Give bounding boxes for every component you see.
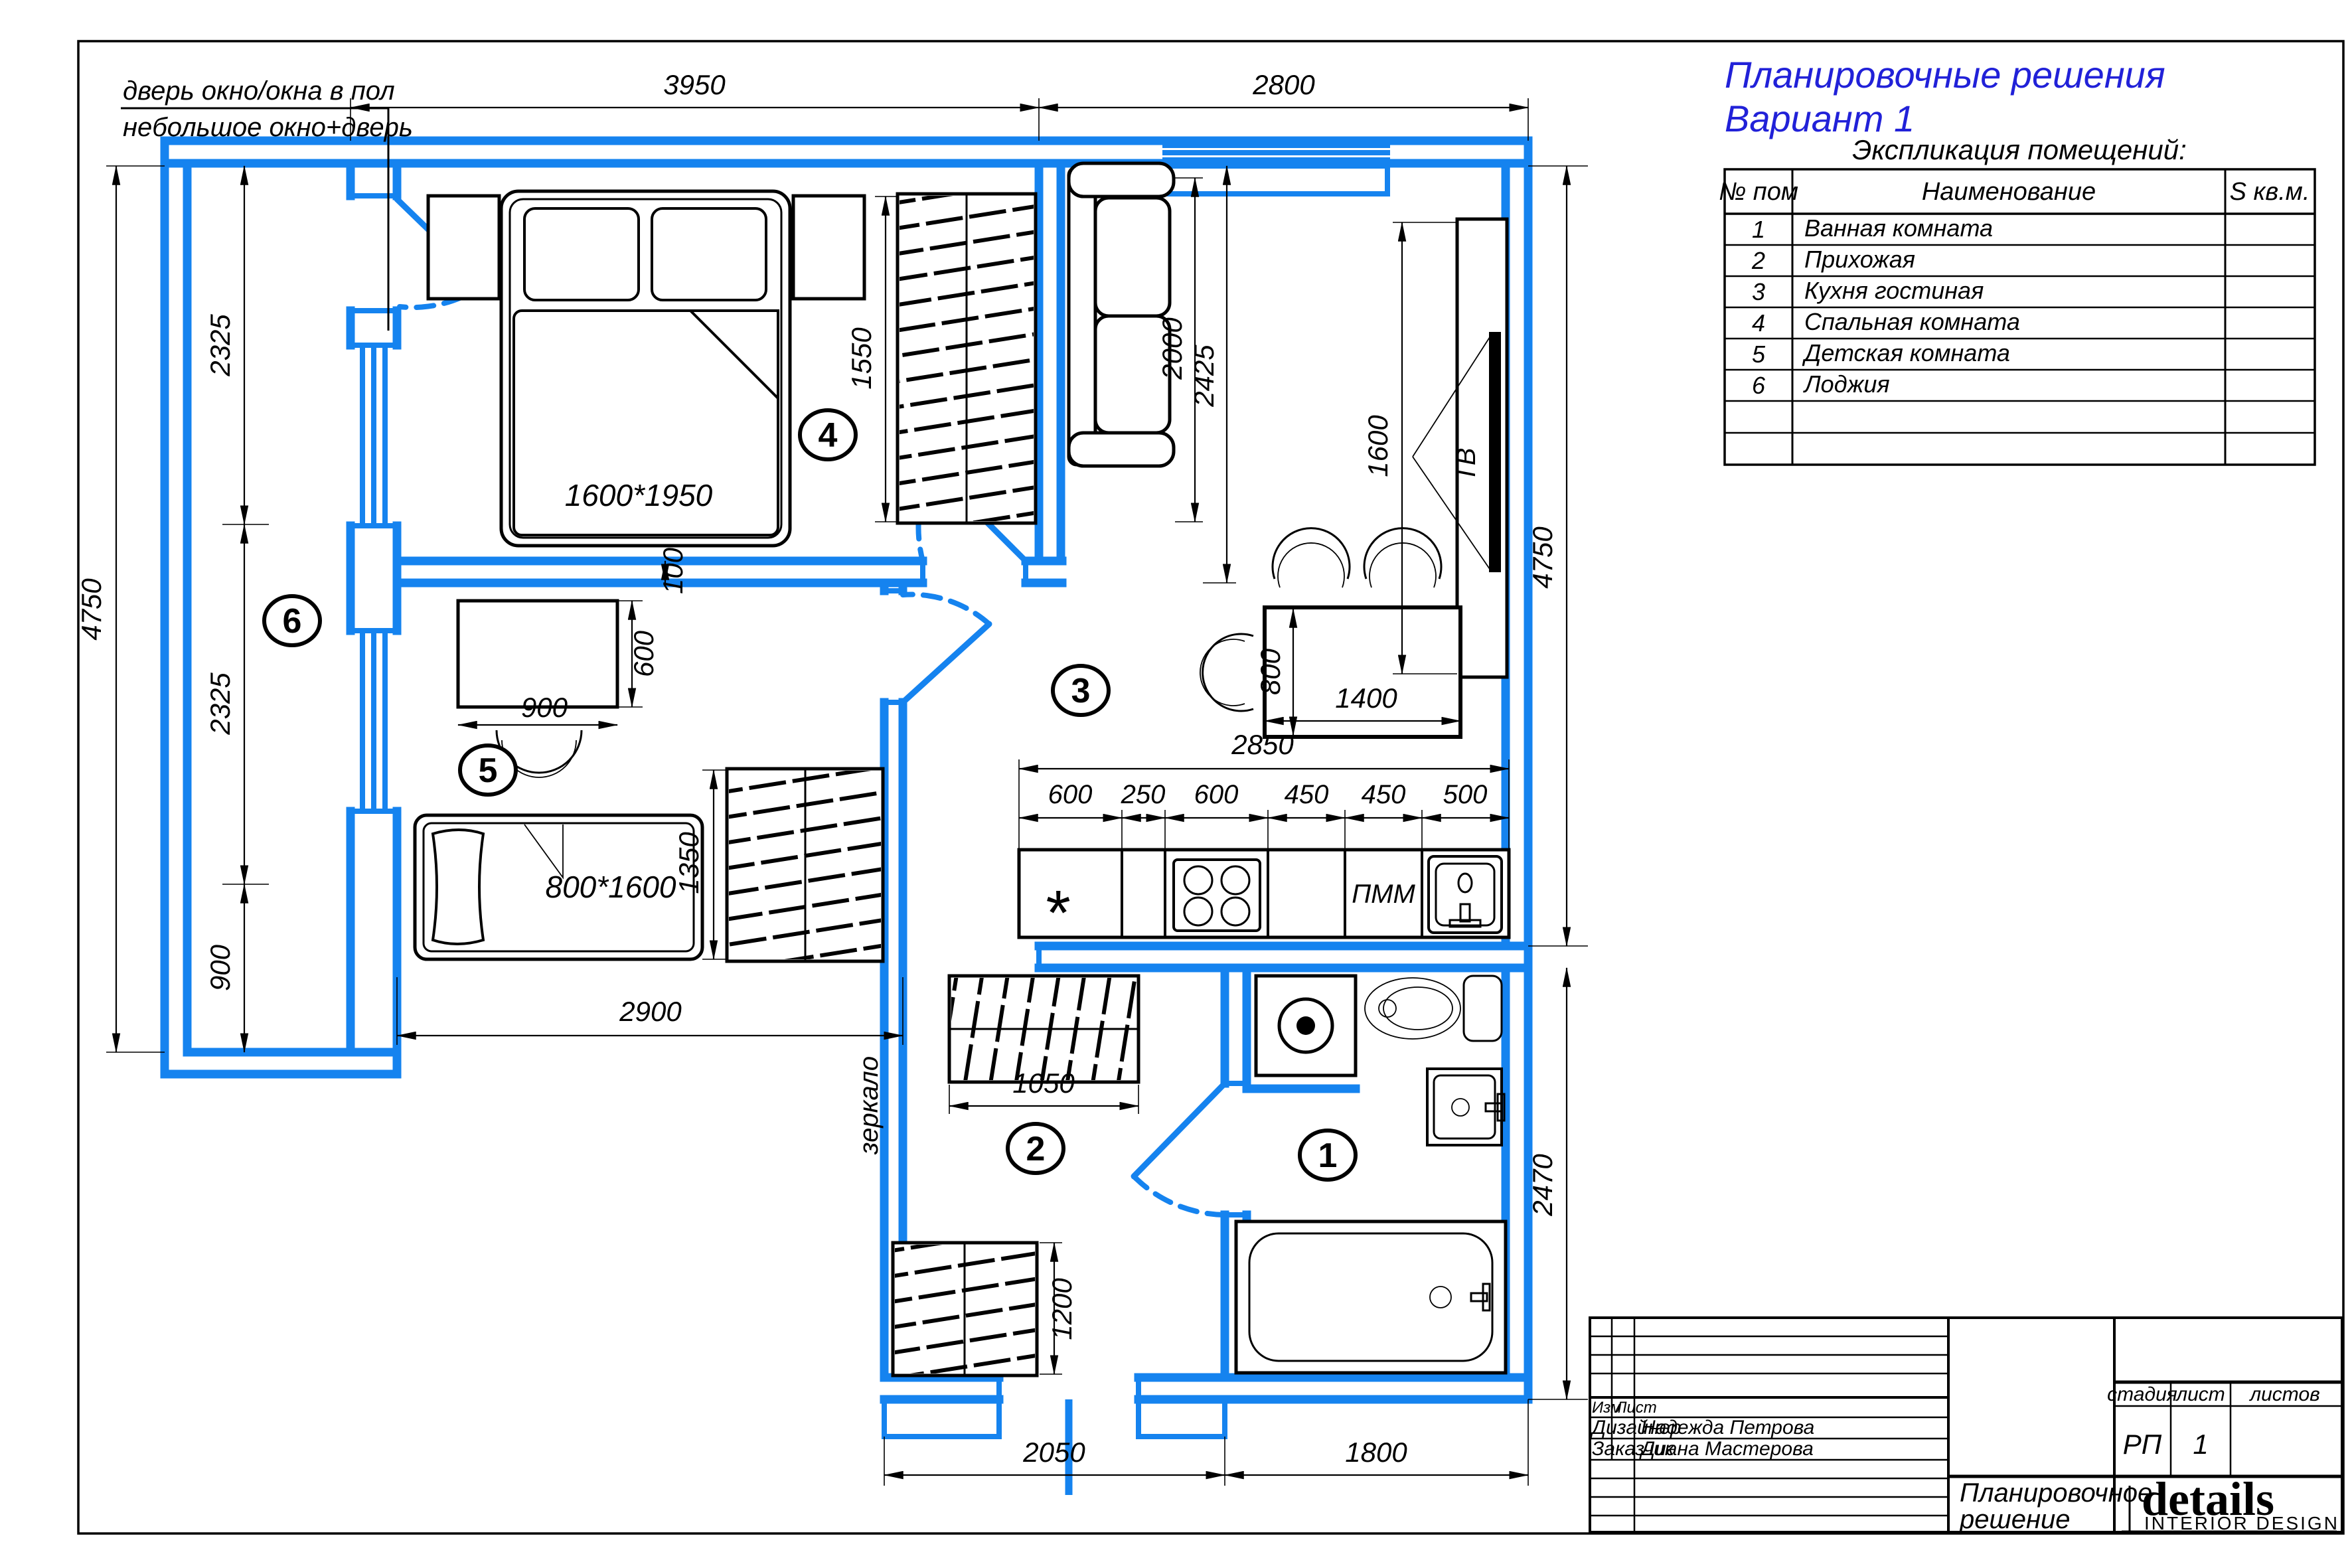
tb-doc-line1: Планировочное — [1960, 1478, 2152, 1508]
sofa — [1069, 163, 1174, 466]
svg-text:6: 6 — [283, 602, 302, 641]
dim-1400: 1400 — [1335, 682, 1397, 714]
toilet-icon — [1365, 976, 1502, 1041]
legend-row: 5 Детская комната — [1752, 339, 2010, 368]
svg-text:4: 4 — [1752, 309, 1765, 337]
dining-table — [1200, 528, 1460, 737]
door-bathroom — [1134, 1083, 1227, 1215]
dim-100: 100 — [657, 547, 688, 594]
legend-col-name: Наименование — [1922, 178, 2096, 206]
svg-text:5: 5 — [1752, 341, 1766, 368]
bathtub-icon — [1236, 1221, 1506, 1373]
svg-text:Детская комната: Детская комната — [1802, 339, 2010, 366]
svg-text:Ванная комната: Ванная комната — [1804, 214, 1993, 242]
dim-2470: 2470 — [1527, 1154, 1558, 1217]
wardrobe-kids — [727, 769, 883, 961]
window-loggia-glazing — [362, 345, 385, 811]
room-bubble-4: 4 — [800, 410, 856, 459]
heading-line2: Вариант 1 — [1725, 98, 1915, 139]
room-bubble-1: 1 — [1300, 1131, 1356, 1180]
tb-sheet-label: лист — [2175, 1383, 2225, 1405]
svg-text:Прихожая: Прихожая — [1804, 246, 1915, 273]
dim-seg-250: 250 — [1121, 780, 1166, 809]
floor-plan-canvas: 1600*1950 800*1600 ТВ — [0, 0, 2352, 1568]
pillow-right — [652, 208, 766, 300]
heading-line1: Планировочные решения — [1725, 54, 2165, 96]
legend-table: Экспликация помещений: № пом Наименовани… — [1719, 134, 2315, 465]
dim-900-desk: 900 — [521, 692, 568, 723]
dim-1600: 1600 — [1362, 415, 1393, 477]
svg-text:3: 3 — [1071, 672, 1091, 710]
kitchen-sink-icon — [1429, 856, 1502, 933]
room-bubble-3: 3 — [1053, 666, 1109, 715]
tb-stage-label: стадия — [2107, 1383, 2177, 1405]
svg-text:5: 5 — [479, 751, 498, 790]
legend-col-area: S кв.м. — [2230, 178, 2310, 206]
tb-sheets-label: листов — [2248, 1383, 2320, 1405]
wardrobe-hall-bottom — [893, 1243, 1037, 1375]
dim-800: 800 — [1255, 648, 1286, 695]
pillow-left — [524, 208, 639, 300]
svg-text:2: 2 — [1751, 247, 1765, 274]
chair — [1273, 528, 1350, 579]
tb-list: Лист — [1614, 1399, 1657, 1417]
svg-text:1: 1 — [1752, 216, 1765, 243]
title-block: Изм Лист Дизайнер Надежда Петрова Заказч… — [1590, 1318, 2342, 1534]
svg-text:Кухня гостиная: Кухня гостиная — [1804, 277, 1984, 304]
room-bubble-6: 6 — [264, 596, 320, 645]
chair — [1278, 543, 1344, 588]
legend-row: 2 Прихожая — [1751, 246, 1915, 274]
fridge-icon: * — [1043, 878, 1069, 949]
tv-screen — [1489, 332, 1501, 572]
desk — [458, 601, 617, 707]
bath-sink-icon — [1427, 1069, 1504, 1145]
dim-4750-left: 4750 — [76, 578, 107, 641]
note-line1: дверь окно/окна в пол — [123, 76, 395, 106]
nightstand-left — [428, 196, 499, 299]
dim-1050: 1050 — [1012, 1067, 1075, 1099]
door-kids-room — [903, 595, 989, 702]
dim-seg-500: 500 — [1443, 780, 1488, 809]
dim-2000: 2000 — [1156, 317, 1188, 380]
dim-1350: 1350 — [673, 832, 704, 894]
bed-double-label: 1600*1950 — [565, 478, 713, 512]
dim-2800: 2800 — [1252, 69, 1315, 100]
dim-seg-450b: 450 — [1362, 780, 1406, 809]
legend-row: 3 Кухня гостиная — [1752, 277, 1984, 305]
chair — [1203, 634, 1253, 711]
bed-single: 800*1600 — [415, 815, 702, 959]
svg-text:Лоджия: Лоджия — [1803, 370, 1890, 398]
note-line2: небольшое окно+дверь — [123, 113, 413, 142]
bed-single-label: 800*1600 — [546, 870, 676, 904]
nightstand-right — [793, 196, 864, 299]
svg-text:4: 4 — [819, 416, 838, 455]
dim-seg-450a: 450 — [1285, 780, 1329, 809]
dim-2850: 2850 — [1231, 729, 1294, 760]
dim-3950: 3950 — [663, 69, 726, 100]
dim-2325-b: 2325 — [204, 672, 236, 736]
dim-2050: 2050 — [1022, 1437, 1085, 1468]
room-bubble-5: 5 — [460, 745, 516, 795]
dim-seg-600b: 600 — [1194, 780, 1239, 809]
svg-text:Спальная комната: Спальная комната — [1804, 308, 2020, 335]
svg-text:6: 6 — [1752, 372, 1766, 399]
tb-designer-name: Надежда Петрова — [1641, 1417, 1814, 1439]
dim-4750-right: 4750 — [1527, 526, 1558, 589]
dim-2425: 2425 — [1188, 345, 1219, 408]
tb-client-name: Диана Мастерова — [1639, 1438, 1814, 1460]
room-bubble-2: 2 — [1008, 1124, 1063, 1173]
svg-text:2: 2 — [1026, 1130, 1046, 1168]
legend-row: 6 Лоджия — [1752, 370, 1890, 399]
window-living — [1165, 166, 1387, 194]
wardrobe-hall-top — [949, 976, 1138, 1082]
dim-1800: 1800 — [1345, 1437, 1407, 1468]
drawing-sheet: 1600*1950 800*1600 ТВ — [0, 0, 2352, 1568]
legend-row: 1 Ванная комната — [1752, 214, 1993, 243]
chair — [1200, 639, 1245, 706]
stove-icon — [1174, 860, 1260, 931]
svg-text:3: 3 — [1752, 278, 1765, 305]
dim-2900: 2900 — [619, 996, 682, 1027]
bed-double: 1600*1950 — [501, 191, 790, 546]
drawing-heading: Планировочные решения Вариант 1 — [1725, 54, 2165, 139]
wardrobe-bedroom — [898, 194, 1036, 523]
dim-1200: 1200 — [1046, 1278, 1077, 1340]
dim-2325-a: 2325 — [204, 314, 236, 377]
dishwasher-label: ПММ — [1352, 880, 1415, 909]
dim-seg-600a: 600 — [1048, 780, 1093, 809]
tb-doc-line2: решение — [1959, 1505, 2070, 1534]
brand-subtitle: INTERIOR DESIGN — [2144, 1513, 2339, 1533]
tb-sheet-value: 1 — [2193, 1429, 2208, 1460]
washing-machine-icon — [1256, 976, 1356, 1075]
legend-col-num: № пом — [1719, 178, 1798, 206]
pillow — [433, 830, 483, 944]
svg-text:1: 1 — [1318, 1137, 1338, 1175]
tb-stage-value: РП — [2123, 1429, 2162, 1460]
mirror-label: зеркало — [854, 1056, 884, 1155]
kitchen-counter: * ПММ — [1019, 850, 1509, 949]
legend-title: Экспликация помещений: — [1852, 134, 2187, 165]
dim-900-left: 900 — [204, 944, 236, 991]
tv-label: ТВ — [1452, 447, 1481, 481]
dim-1550: 1550 — [846, 327, 877, 390]
dim-600: 600 — [628, 630, 659, 677]
